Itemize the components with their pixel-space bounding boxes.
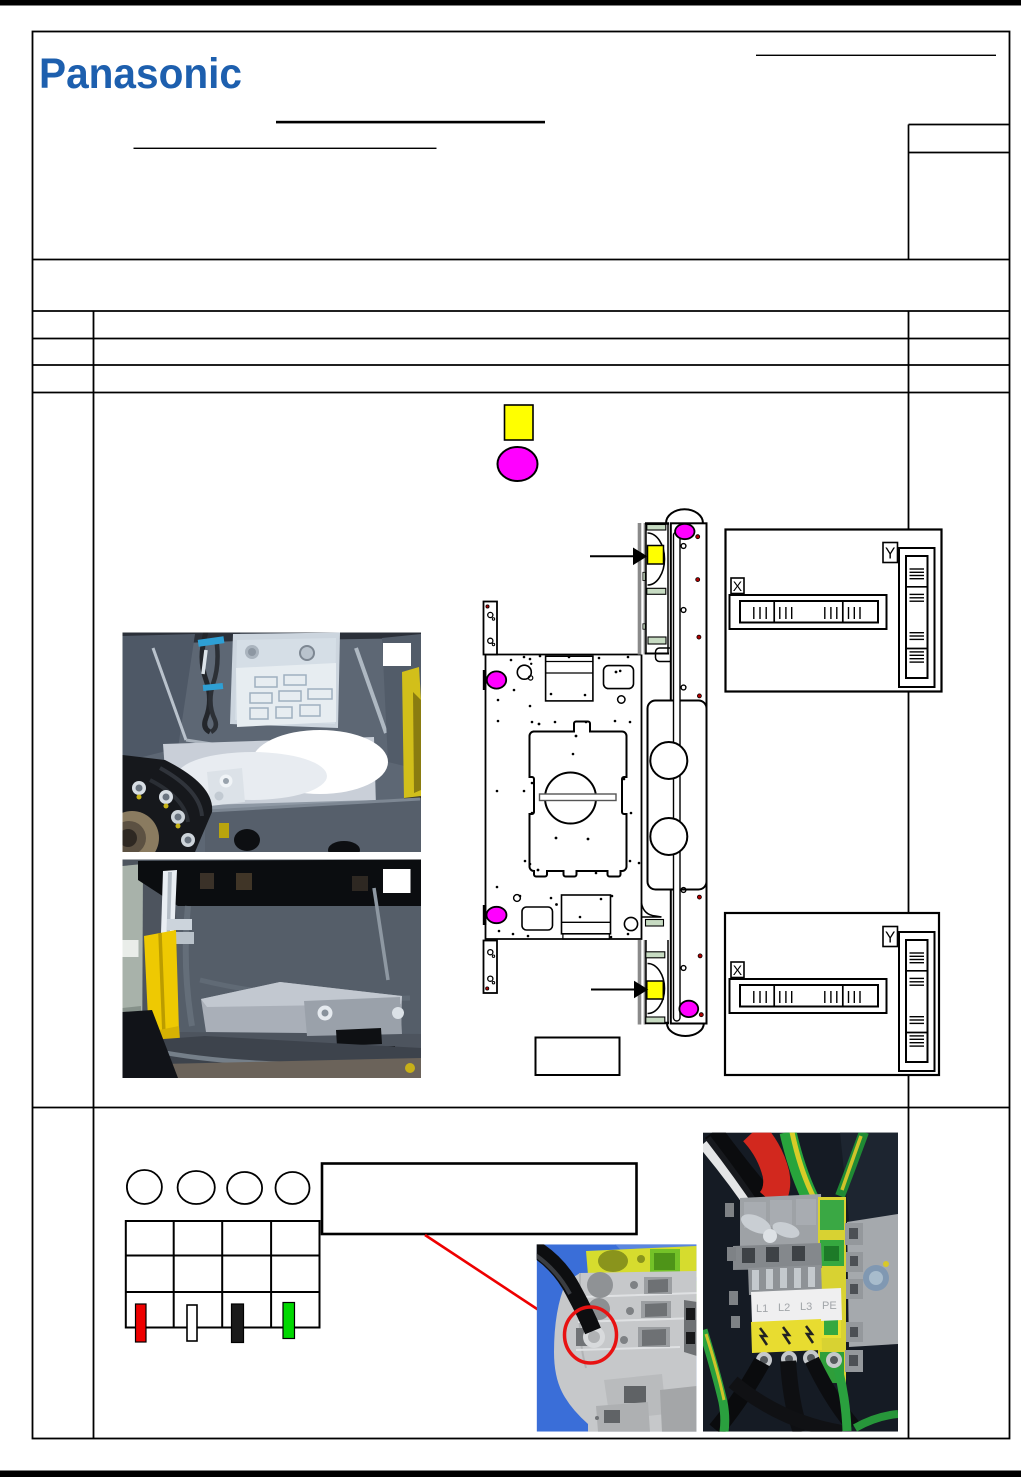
svg-text:Panasonic: Panasonic (39, 50, 242, 98)
svg-text:L2: L2 (778, 1302, 790, 1314)
svg-text:X: X (733, 962, 743, 978)
svg-text:X: X (733, 578, 743, 594)
svg-text:Y: Y (885, 930, 895, 947)
svg-text:L3: L3 (800, 1301, 812, 1313)
svg-text:Y: Y (885, 546, 895, 563)
svg-text:PE: PE (822, 1300, 837, 1312)
svg-text:L1: L1 (756, 1303, 768, 1315)
